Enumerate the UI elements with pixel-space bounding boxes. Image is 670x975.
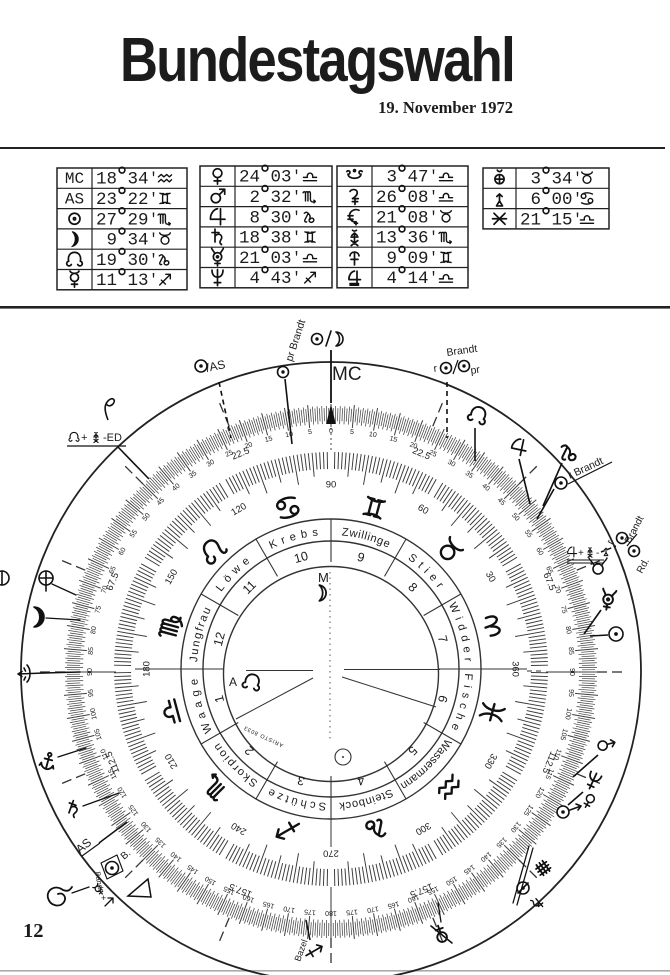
svg-text:A: A — [229, 675, 237, 689]
svg-text:2: 2 — [249, 188, 260, 208]
svg-text:′: ′ — [292, 250, 301, 267]
svg-text:08: 08 — [408, 208, 429, 228]
svg-text:90: 90 — [568, 668, 575, 676]
svg-text:27: 27 — [96, 210, 117, 230]
svg-text:3: 3 — [530, 170, 541, 190]
svg-text:′: ′ — [149, 232, 158, 249]
svg-text:19: 19 — [96, 251, 117, 271]
svg-text:M: M — [318, 570, 329, 585]
svg-text:18: 18 — [96, 170, 117, 190]
svg-text:36: 36 — [408, 229, 429, 249]
svg-text:MC: MC — [332, 364, 362, 385]
svg-text:24: 24 — [239, 168, 260, 188]
svg-text:6: 6 — [530, 190, 541, 210]
svg-text:9: 9 — [106, 231, 117, 251]
svg-text:′: ′ — [292, 189, 301, 206]
svg-text:34: 34 — [128, 231, 149, 251]
svg-text:′: ′ — [292, 209, 301, 226]
svg-text:95: 95 — [88, 689, 96, 697]
svg-text:43: 43 — [271, 269, 292, 289]
svg-text:15: 15 — [552, 210, 573, 230]
svg-text:3: 3 — [386, 168, 397, 188]
svg-text:21: 21 — [520, 210, 541, 230]
svg-text:32: 32 — [271, 188, 292, 208]
svg-text:26: 26 — [376, 188, 397, 208]
svg-text:′: ′ — [149, 211, 158, 228]
svg-text:08: 08 — [408, 188, 429, 208]
svg-text:30: 30 — [128, 251, 149, 271]
svg-text:270: 270 — [323, 848, 339, 859]
svg-text:03: 03 — [271, 168, 292, 188]
svg-text:34: 34 — [128, 170, 149, 190]
svg-text:10: 10 — [285, 431, 294, 439]
svg-text:18: 18 — [239, 229, 260, 249]
svg-text:21: 21 — [239, 249, 260, 269]
svg-text:360: 360 — [510, 661, 521, 677]
svg-text:+: + — [578, 548, 584, 559]
svg-text:80: 80 — [90, 626, 98, 635]
svg-text:14: 14 — [408, 269, 429, 289]
svg-text:4: 4 — [386, 269, 397, 289]
svg-text:29: 29 — [128, 210, 149, 230]
svg-text:90: 90 — [326, 480, 337, 491]
svg-text:12: 12 — [23, 920, 44, 942]
svg-text:09: 09 — [408, 249, 429, 269]
svg-text:180: 180 — [142, 661, 153, 677]
svg-text:′: ′ — [292, 169, 301, 186]
svg-text:′: ′ — [149, 272, 158, 289]
svg-text:5: 5 — [350, 429, 355, 436]
svg-text:′: ′ — [429, 189, 438, 206]
svg-text:22: 22 — [128, 190, 149, 210]
svg-text:′: ′ — [429, 169, 438, 186]
svg-text:180: 180 — [325, 909, 337, 916]
svg-text:+: + — [101, 893, 106, 903]
svg-text:′: ′ — [149, 252, 158, 269]
svg-text:13: 13 — [376, 229, 397, 249]
svg-text:′: ′ — [573, 191, 582, 208]
svg-text:175: 175 — [346, 908, 358, 916]
svg-text:47: 47 — [408, 168, 429, 188]
svg-text:+: + — [81, 432, 87, 444]
svg-text:Bundestagswahl: Bundestagswahl — [120, 26, 514, 95]
svg-text:9: 9 — [386, 249, 397, 269]
svg-text:19. November 1972: 19. November 1972 — [378, 98, 513, 117]
svg-text:8: 8 — [249, 208, 260, 228]
svg-text:10: 10 — [368, 431, 377, 439]
svg-text:13: 13 — [128, 271, 149, 291]
svg-text:30: 30 — [271, 208, 292, 228]
svg-text:5: 5 — [308, 429, 313, 436]
svg-text:4: 4 — [249, 269, 260, 289]
svg-text:34: 34 — [552, 170, 573, 190]
svg-text:′: ′ — [429, 270, 438, 287]
svg-text:-ED: -ED — [103, 432, 122, 444]
svg-text:′: ′ — [292, 270, 301, 287]
svg-text:MC: MC — [65, 170, 84, 188]
svg-text:85: 85 — [88, 647, 96, 655]
svg-text:11: 11 — [96, 271, 117, 291]
svg-text:00: 00 — [552, 190, 573, 210]
svg-text:95: 95 — [567, 689, 575, 697]
svg-text:21: 21 — [376, 208, 397, 228]
svg-text:90: 90 — [87, 668, 94, 676]
svg-text:AS: AS — [65, 190, 84, 208]
svg-text:03: 03 — [271, 249, 292, 269]
svg-text:′: ′ — [149, 191, 158, 208]
svg-text:′: ′ — [573, 171, 582, 188]
svg-text:′: ′ — [149, 171, 158, 188]
svg-text:-: - — [596, 548, 599, 559]
svg-text:80: 80 — [564, 626, 572, 635]
svg-text:′: ′ — [429, 250, 438, 267]
svg-text:′: ′ — [292, 230, 301, 247]
svg-text:′: ′ — [429, 209, 438, 226]
svg-text:23: 23 — [96, 190, 117, 210]
svg-text:175: 175 — [304, 908, 316, 916]
svg-text:′: ′ — [429, 230, 438, 247]
svg-text:85: 85 — [567, 647, 575, 655]
svg-text:38: 38 — [271, 229, 292, 249]
